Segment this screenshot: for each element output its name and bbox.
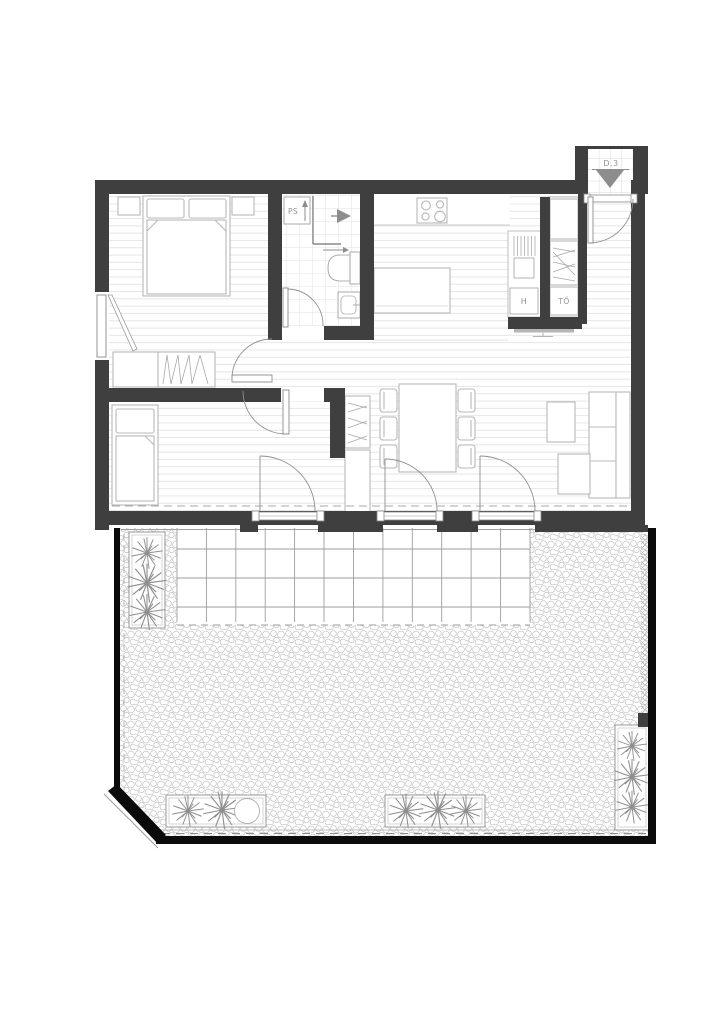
single-bed xyxy=(112,405,158,505)
cooktop-icon xyxy=(417,198,447,223)
dining-table xyxy=(380,384,475,472)
terrace-planter-left xyxy=(128,532,167,630)
pillow xyxy=(189,199,226,218)
dining-chair xyxy=(380,389,397,412)
washbasin xyxy=(338,292,360,318)
hall-wardrobe xyxy=(113,352,215,387)
nightstand xyxy=(118,197,140,215)
sofa-chaise xyxy=(558,454,590,494)
terrace-pergola-grid xyxy=(177,528,530,625)
terrace-planter-bottom-left xyxy=(166,791,266,829)
floor-plan-drawing: PS H TŐ D.3 xyxy=(0,0,727,1024)
coffee-table xyxy=(547,402,575,442)
dining-chair xyxy=(458,389,475,412)
pillow xyxy=(116,409,154,433)
kitchen-island xyxy=(374,268,450,313)
terrace-drain-strip xyxy=(641,534,649,714)
storage-label: TŐ xyxy=(557,297,569,306)
floor-plan-page: PS H TŐ D.3 xyxy=(0,0,727,1024)
dining-chair xyxy=(458,417,475,440)
dining-chair xyxy=(380,417,397,440)
dining-chair xyxy=(380,445,397,468)
unit-label: D.3 xyxy=(603,159,618,168)
terrace-door-threshold xyxy=(252,511,324,521)
terrace-door-threshold xyxy=(472,511,541,521)
pillow xyxy=(147,199,184,218)
terrace-door-threshold xyxy=(377,511,443,521)
pipe-shaft-label: PS xyxy=(288,207,298,216)
nightstand xyxy=(232,197,254,215)
terrace-planter-bottom-middle xyxy=(385,791,485,829)
fridge-label: H xyxy=(521,297,528,306)
planter-pot-icon xyxy=(235,799,260,824)
toilet xyxy=(328,252,360,284)
dining-chair xyxy=(458,445,475,468)
terrace xyxy=(104,528,656,848)
terrace-planter-right xyxy=(614,725,650,830)
